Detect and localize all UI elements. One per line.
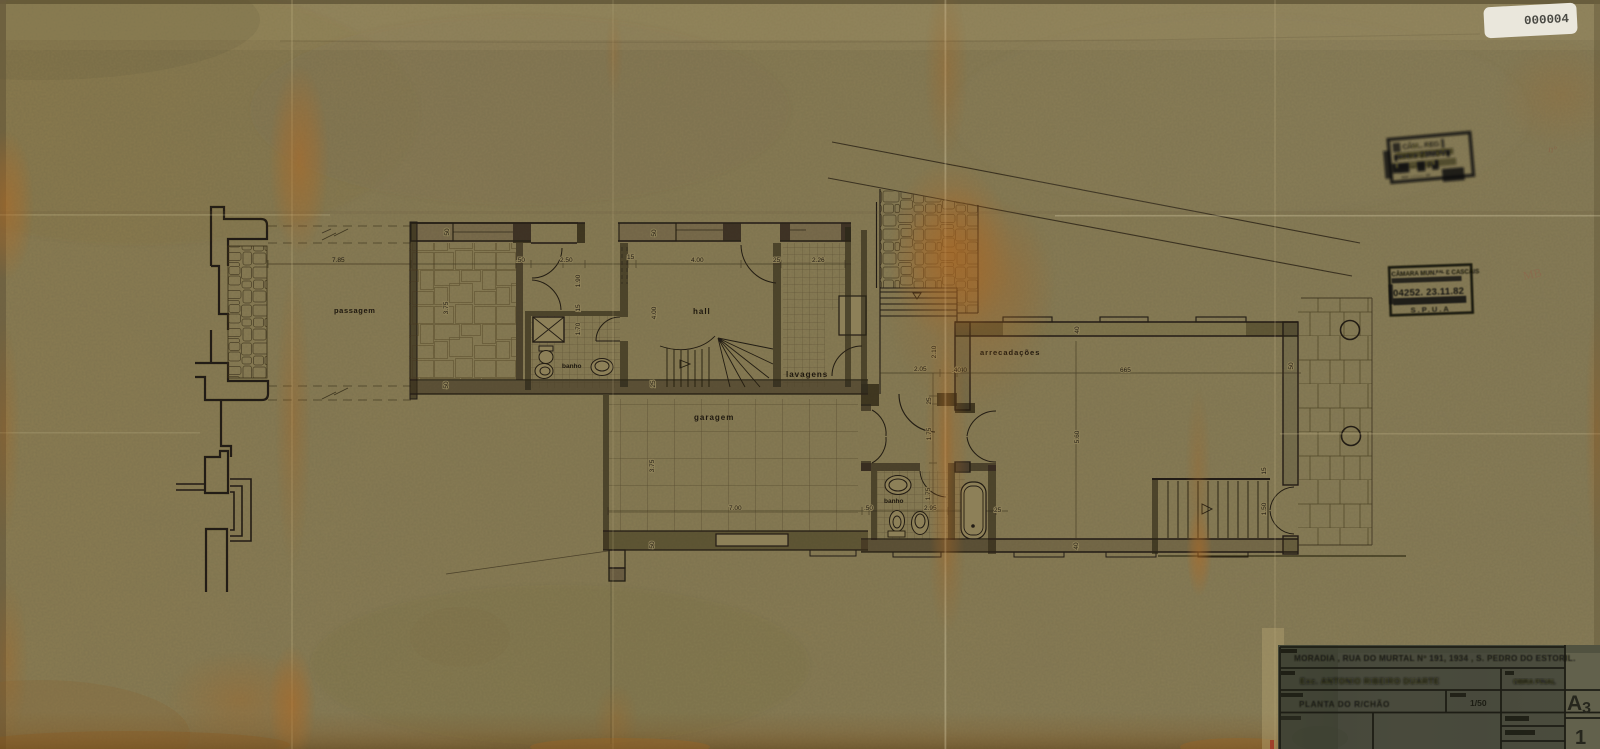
svg-text:banho: banho xyxy=(562,363,582,370)
svg-text:50: 50 xyxy=(443,381,450,389)
svg-text:lavagens: lavagens xyxy=(786,370,828,379)
svg-text:40: 40 xyxy=(1073,542,1080,550)
svg-text:S.P.U.A: S.P.U.A xyxy=(1410,304,1450,314)
svg-text:passagem: passagem xyxy=(334,306,376,315)
svg-text:2.26: 2.26 xyxy=(812,257,825,264)
svg-text:25: 25 xyxy=(994,507,1002,514)
svg-text:50: 50 xyxy=(649,541,656,549)
svg-text:50: 50 xyxy=(651,229,658,237)
svg-text:2.50: 2.50 xyxy=(560,257,573,264)
svg-text:4.00: 4.00 xyxy=(691,257,704,264)
svg-text:.50: .50 xyxy=(864,505,873,512)
svg-text:Exc. ANTONIO RIBEIRO DUARTE: Exc. ANTONIO RIBEIRO DUARTE xyxy=(1300,677,1440,686)
svg-text:3.75: 3.75 xyxy=(443,301,450,314)
svg-text:1: 1 xyxy=(1575,727,1586,749)
svg-text:5.60: 5.60 xyxy=(1074,430,1081,443)
svg-text:1.90: 1.90 xyxy=(575,274,582,287)
svg-text:garagem: garagem xyxy=(694,413,734,422)
svg-text:25: 25 xyxy=(773,257,781,264)
svg-text:50: 50 xyxy=(444,228,451,236)
svg-text:4.00: 4.00 xyxy=(651,306,658,319)
svg-text:1.70: 1.70 xyxy=(575,322,582,335)
svg-text:1.50: 1.50 xyxy=(1261,502,1268,515)
svg-text:40: 40 xyxy=(1074,326,1081,334)
svg-text:MORADIA , RUA DO MURTAL Nº 19: MORADIA , RUA DO MURTAL Nº 191, 1934 , S… xyxy=(1294,654,1576,663)
svg-text:banho: banho xyxy=(884,498,904,505)
svg-text:50: 50 xyxy=(1288,362,1295,370)
svg-text:7.85: 7.85 xyxy=(332,257,345,264)
svg-text:PLANTA DO R/CHÃO: PLANTA DO R/CHÃO xyxy=(1299,699,1390,709)
svg-text:3.75: 3.75 xyxy=(649,459,656,472)
svg-text:15: 15 xyxy=(1261,467,1268,475)
svg-text:hall: hall xyxy=(693,307,711,316)
svg-text:15: 15 xyxy=(575,304,582,312)
svg-text:1/50: 1/50 xyxy=(1470,698,1487,708)
svg-text:.50: .50 xyxy=(516,257,525,264)
svg-text:000004: 000004 xyxy=(1524,12,1570,28)
svg-text:nº: nº xyxy=(1548,144,1558,156)
svg-text:OBRA FINAL: OBRA FINAL xyxy=(1513,679,1557,686)
svg-text:15: 15 xyxy=(627,254,635,261)
svg-text:665: 665 xyxy=(1120,367,1131,374)
svg-text:25: 25 xyxy=(650,380,657,388)
